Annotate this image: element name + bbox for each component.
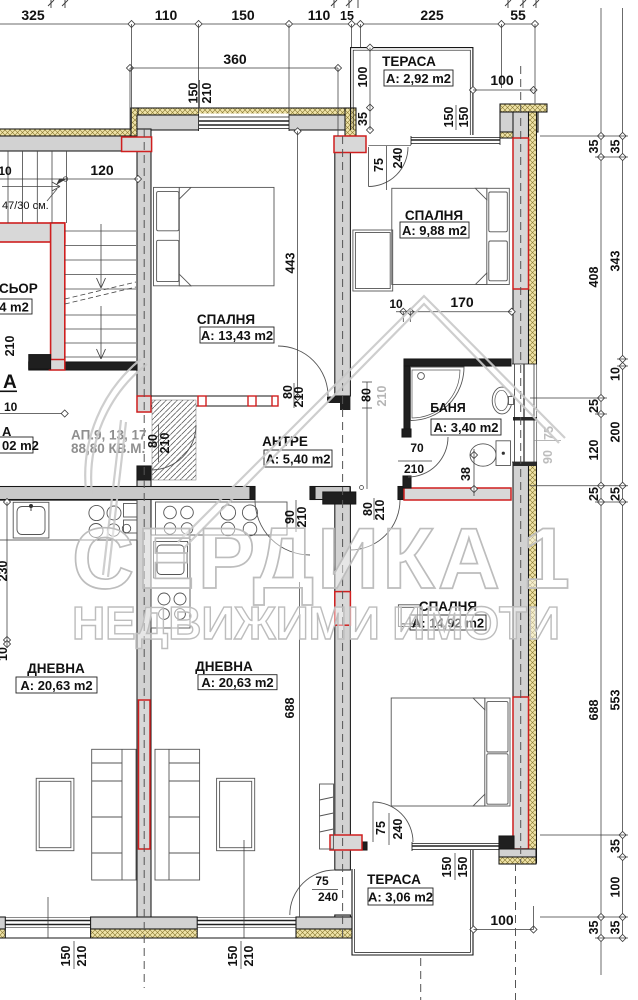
svg-text:150: 150 (442, 107, 456, 128)
svg-text:70: 70 (410, 441, 424, 455)
svg-text:150: 150 (456, 857, 470, 878)
svg-text:СПАЛНЯ: СПАЛНЯ (197, 312, 255, 327)
svg-text:90: 90 (541, 450, 555, 464)
svg-text:120: 120 (587, 440, 601, 461)
svg-text:10: 10 (4, 400, 18, 414)
svg-text:150: 150 (226, 946, 240, 967)
svg-text:210: 210 (375, 386, 389, 407)
svg-text:210: 210 (292, 387, 306, 408)
svg-text:75: 75 (372, 158, 386, 172)
svg-text:55: 55 (510, 7, 526, 23)
svg-text:225: 225 (420, 7, 444, 23)
svg-text:210: 210 (200, 83, 214, 104)
svg-text:ТЕРАСА: ТЕРАСА (382, 54, 436, 69)
svg-text:210: 210 (404, 462, 424, 476)
svg-text:A: 20,63 m2: A: 20,63 m2 (201, 675, 273, 690)
svg-text:150: 150 (187, 83, 201, 104)
svg-text:240: 240 (318, 890, 338, 904)
svg-text:1: 1 (522, 511, 570, 607)
svg-text:100: 100 (356, 67, 370, 88)
svg-text:ДНЕВНА: ДНЕВНА (27, 661, 85, 676)
svg-text:СПАЛНЯ: СПАЛНЯ (405, 208, 463, 223)
svg-text:110: 110 (155, 7, 178, 23)
svg-text:10: 10 (389, 297, 403, 311)
svg-text:210: 210 (3, 336, 17, 357)
svg-text:А: А (3, 372, 17, 393)
svg-text:A: 20,63 m2: A: 20,63 m2 (20, 678, 92, 693)
svg-text:408: 408 (587, 267, 601, 288)
svg-text:38: 38 (459, 467, 473, 481)
svg-text:100: 100 (609, 877, 623, 898)
svg-text:А: А (2, 424, 12, 439)
svg-text:150: 150 (440, 857, 454, 878)
svg-text:75: 75 (374, 821, 388, 835)
svg-text:200: 200 (609, 422, 623, 443)
svg-text:210: 210 (242, 946, 256, 967)
svg-text:A: 3,06 m2: A: 3,06 m2 (368, 890, 433, 905)
svg-text:553: 553 (609, 690, 623, 711)
svg-text:688: 688 (587, 700, 601, 721)
svg-text:170: 170 (450, 294, 474, 310)
svg-text:343: 343 (609, 251, 623, 272)
svg-text:210: 210 (158, 433, 172, 454)
svg-text:688: 688 (283, 698, 297, 719)
svg-text:35: 35 (609, 921, 623, 935)
svg-text:150: 150 (231, 7, 255, 23)
svg-text:100: 100 (490, 72, 514, 88)
svg-text:ДНЕВНА: ДНЕВНА (195, 659, 253, 674)
svg-text:СЬОР: СЬОР (0, 281, 38, 296)
svg-text:210: 210 (75, 946, 89, 967)
svg-text:10: 10 (0, 647, 10, 661)
svg-text:443: 443 (284, 253, 298, 274)
svg-text:15: 15 (340, 9, 354, 23)
svg-text:35: 35 (587, 921, 601, 935)
svg-text:A: 9,88 m2: A: 9,88 m2 (402, 223, 467, 238)
svg-text:A: 3,40 m2: A: 3,40 m2 (433, 420, 498, 435)
svg-text:10: 10 (0, 164, 12, 178)
svg-text:БАНЯ: БАНЯ (430, 401, 466, 415)
svg-text:25: 25 (609, 487, 623, 501)
svg-text:47/30 см.: 47/30 см. (2, 200, 49, 212)
svg-text:25: 25 (587, 399, 601, 413)
svg-text:230: 230 (0, 561, 10, 582)
svg-text:4 m2: 4 m2 (0, 300, 29, 315)
svg-text:360: 360 (223, 51, 247, 67)
svg-text:110: 110 (308, 7, 331, 23)
svg-text:35: 35 (609, 140, 623, 154)
svg-text:88,80 КВ.М.: 88,80 КВ.М. (71, 441, 145, 456)
svg-text:25: 25 (587, 487, 601, 501)
svg-text:A: 13,43 m2: A: 13,43 m2 (201, 328, 273, 343)
svg-text:100: 100 (490, 912, 514, 928)
svg-text:ТЕРАСА: ТЕРАСА (367, 872, 421, 887)
svg-text:35: 35 (609, 839, 623, 853)
svg-text:150: 150 (457, 107, 471, 128)
svg-text:A: 2,92 m2: A: 2,92 m2 (386, 71, 451, 86)
svg-text:10: 10 (609, 367, 623, 381)
svg-text:120: 120 (90, 162, 114, 178)
svg-text:325: 325 (21, 7, 45, 23)
svg-text:02 m2: 02 m2 (2, 438, 39, 453)
svg-text:35: 35 (587, 140, 601, 154)
svg-text:80: 80 (360, 388, 374, 402)
svg-text:35: 35 (356, 112, 370, 126)
svg-text:150: 150 (59, 946, 73, 967)
svg-text:240: 240 (391, 148, 405, 169)
svg-text:240: 240 (391, 819, 405, 840)
svg-text:75: 75 (315, 874, 329, 888)
svg-text:НЕДВИЖИМИ ИМОТИ: НЕДВИЖИМИ ИМОТИ (72, 597, 560, 649)
